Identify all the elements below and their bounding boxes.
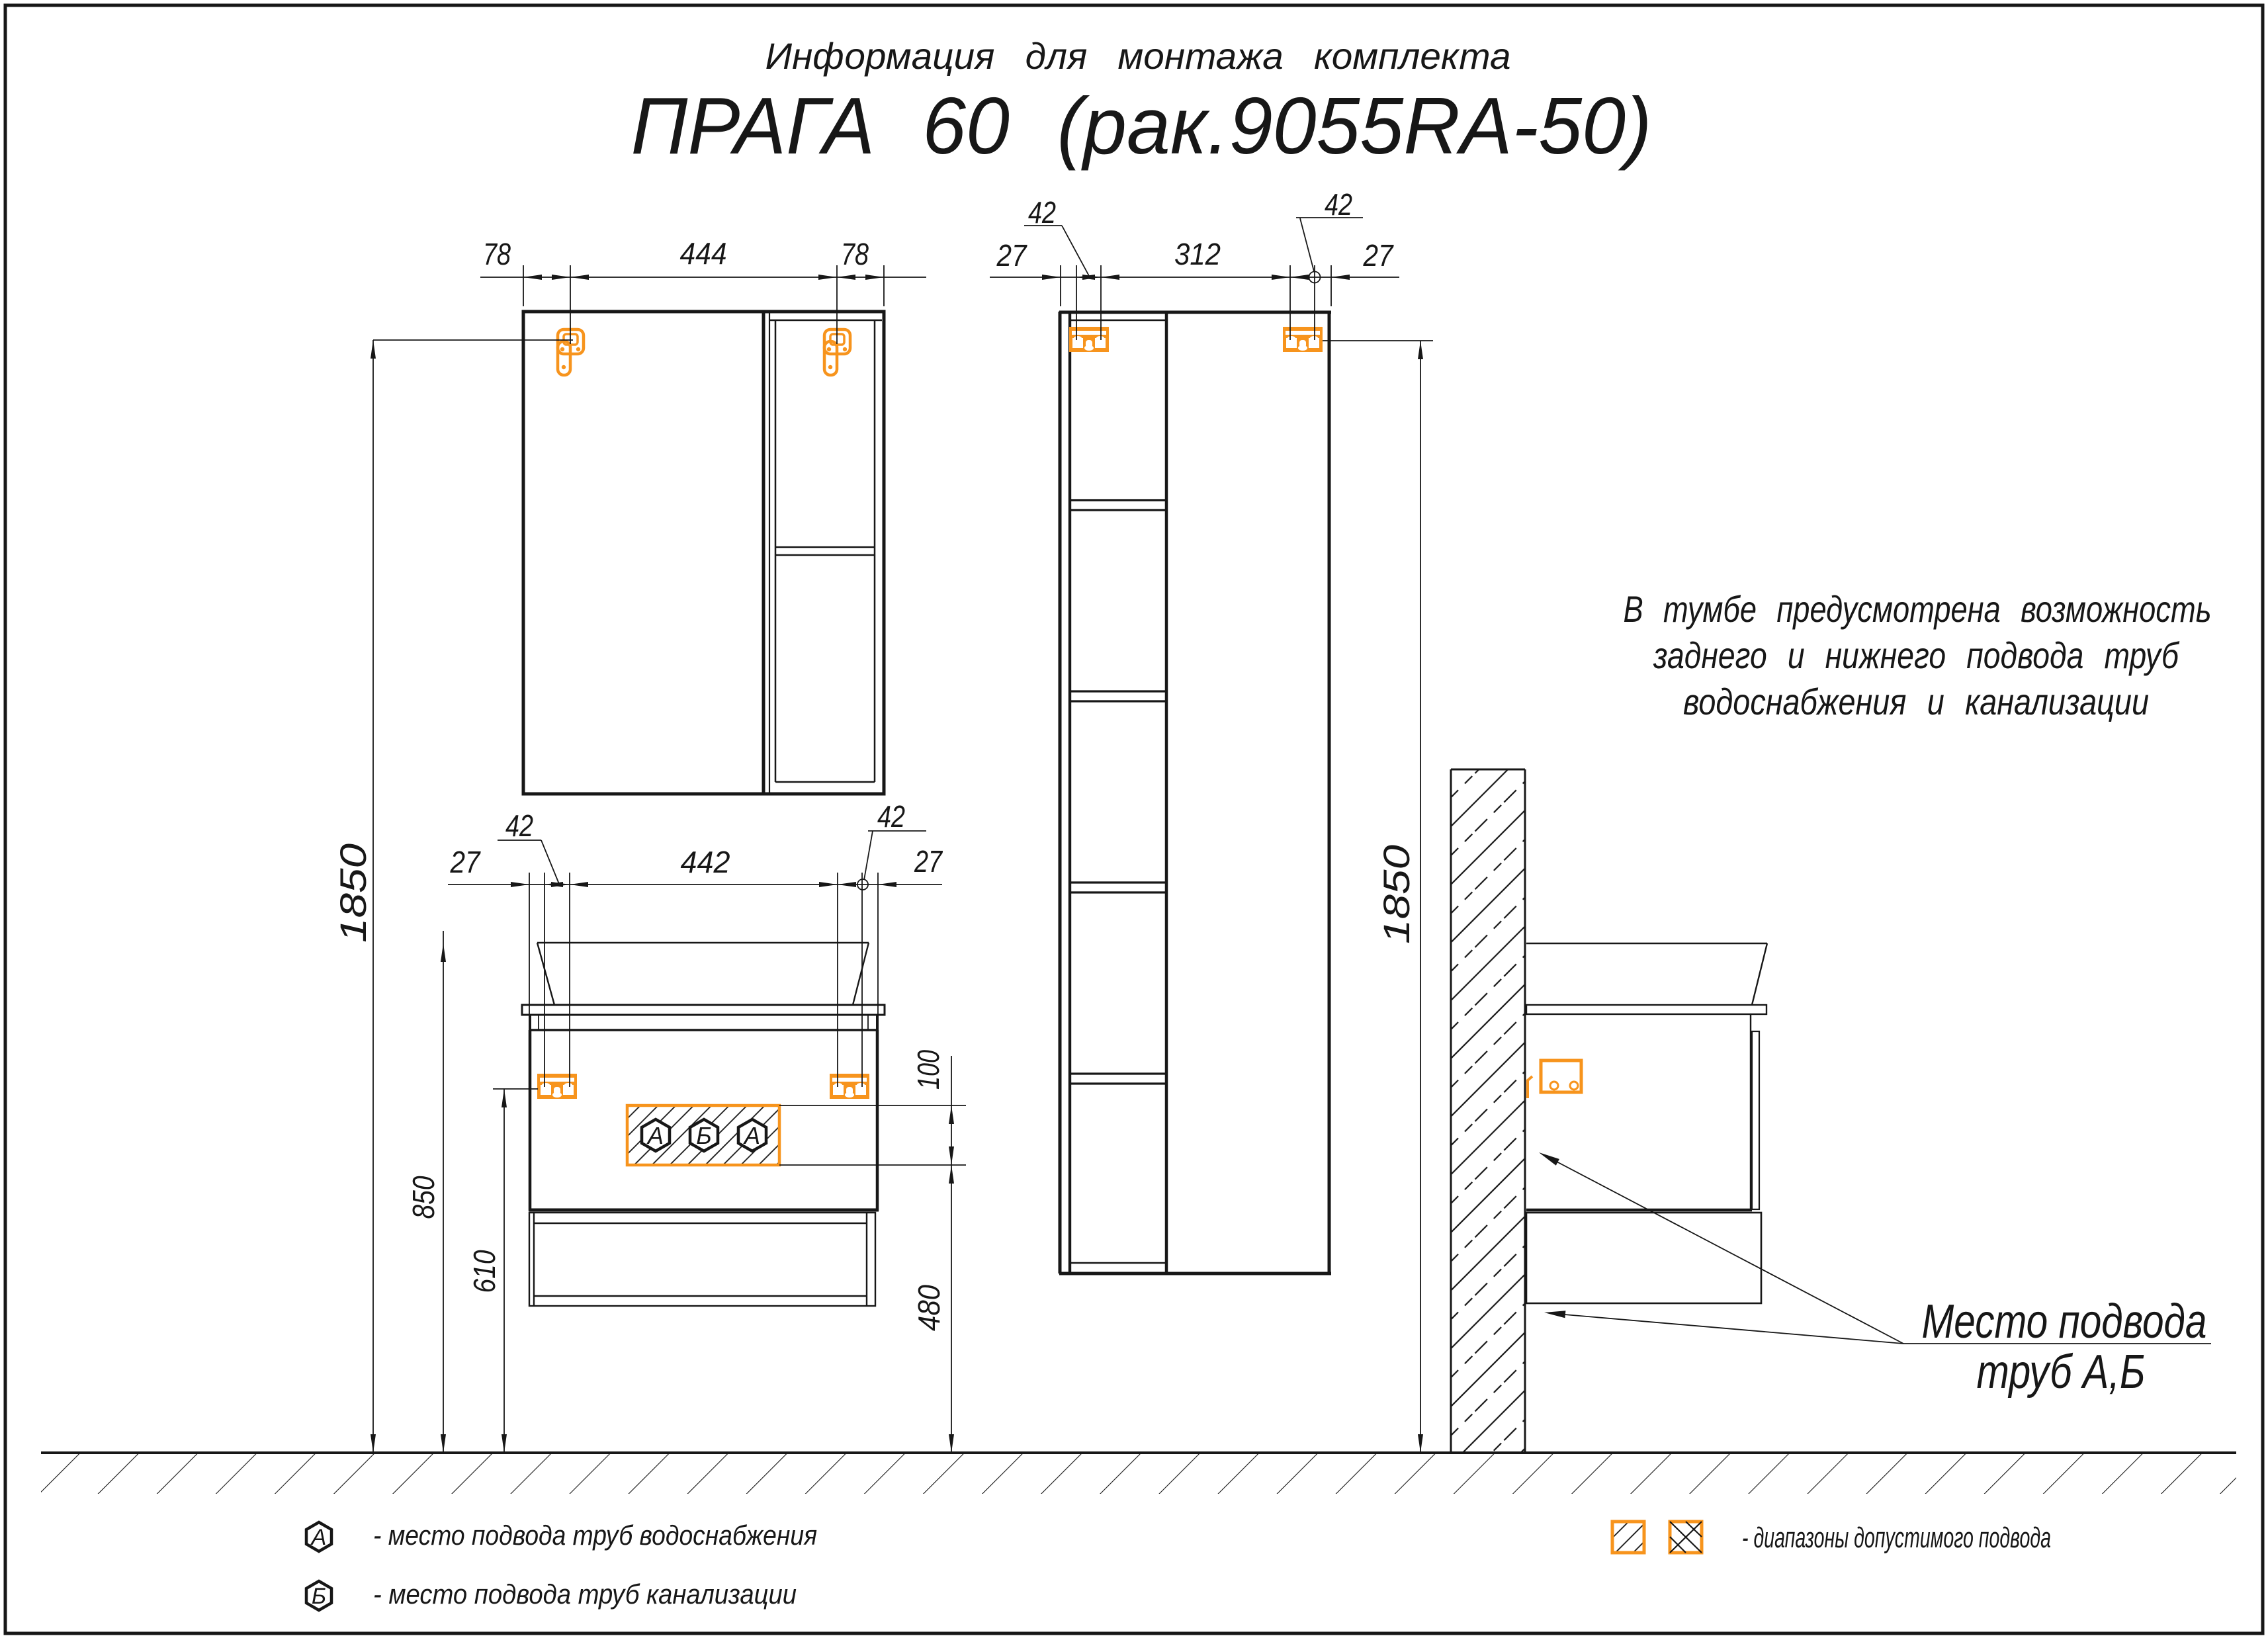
svg-text:1850: 1850 <box>1375 845 1417 944</box>
svg-text:42: 42 <box>1325 187 1352 222</box>
svg-text:850: 850 <box>406 1176 441 1219</box>
svg-text:27: 27 <box>450 845 481 879</box>
svg-text:100: 100 <box>911 1050 945 1090</box>
svg-text:Информация для монтажа комп: Информация для монтажа комплекта <box>765 35 1511 77</box>
svg-text:А: А <box>646 1122 664 1149</box>
svg-text:Б: Б <box>312 1584 326 1609</box>
svg-text:444: 444 <box>680 236 727 271</box>
svg-text:заднего и нижнего подвода труб: заднего и нижнего подвода труб <box>1653 634 2180 676</box>
svg-text:А: А <box>743 1122 760 1149</box>
svg-text:В тумбе предусмотрена возможно: В тумбе предусмотрена возможность <box>1624 588 2212 630</box>
svg-text:Б: Б <box>696 1122 711 1149</box>
svg-text:42: 42 <box>505 808 533 843</box>
svg-text:труб А,Б: труб А,Б <box>1977 1346 2146 1399</box>
svg-text:42: 42 <box>877 799 905 834</box>
svg-text:1850: 1850 <box>332 843 374 943</box>
svg-text:78: 78 <box>841 237 869 271</box>
svg-text:442: 442 <box>681 845 730 879</box>
svg-text:78: 78 <box>483 237 511 271</box>
svg-text:Место подвода: Место подвода <box>1922 1295 2207 1348</box>
svg-text:480: 480 <box>912 1285 946 1331</box>
svg-text:водоснабжения и канализации: водоснабжения и канализации <box>1683 681 2149 722</box>
svg-text:312: 312 <box>1174 237 1221 271</box>
svg-text:27: 27 <box>996 238 1027 273</box>
svg-text:А: А <box>310 1525 327 1550</box>
svg-text:27: 27 <box>914 844 943 879</box>
svg-text:42: 42 <box>1028 195 1056 230</box>
svg-text:ПРАГА 60 (рак.9055RA-50): ПРАГА 60 (рак.9055RA-50) <box>631 81 1652 171</box>
svg-text:610: 610 <box>467 1250 502 1293</box>
svg-text:- место подвода труб канализац: - место подвода труб канализации <box>373 1578 797 1610</box>
svg-text:- диапазоны допустимого подвод: - диапазоны допустимого подвода <box>1742 1522 2051 1554</box>
svg-text:- место подвода труб водоснабж: - место подвода труб водоснабжения <box>373 1520 817 1551</box>
svg-text:27: 27 <box>1363 238 1394 273</box>
